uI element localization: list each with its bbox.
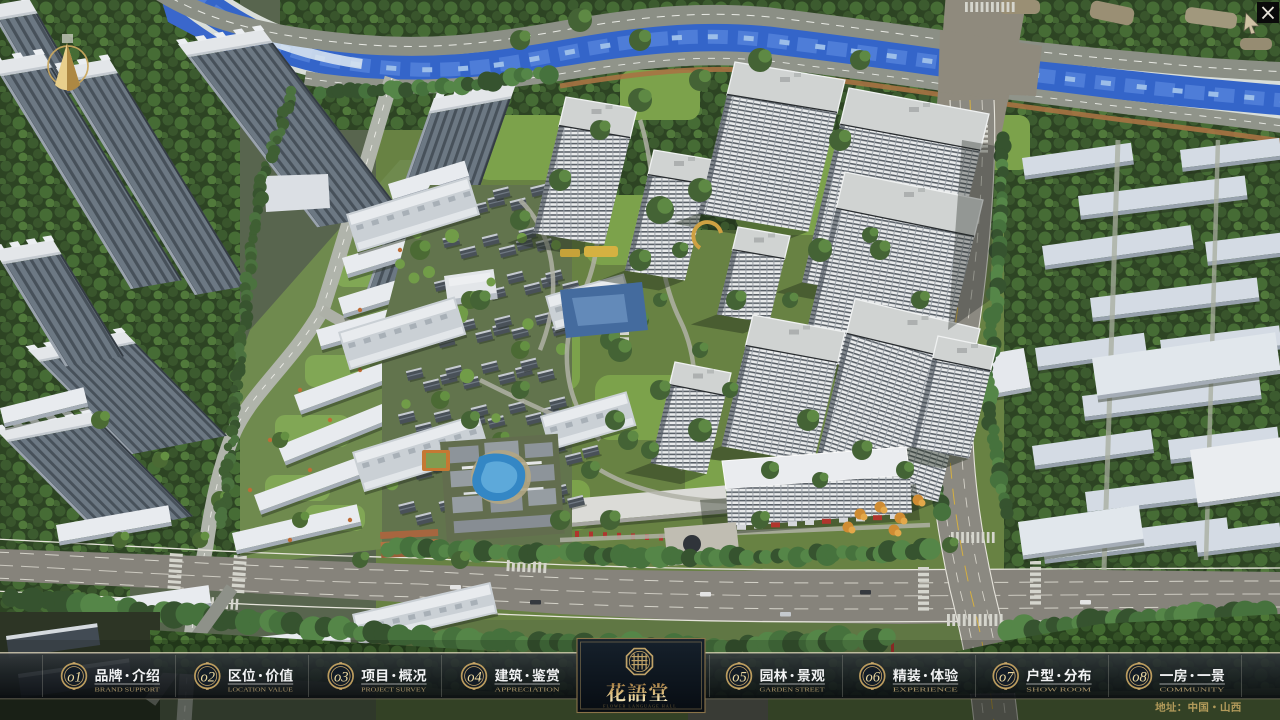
svg-text:SHOW ROOM: SHOW ROOM [1026,686,1092,693]
svg-text:o1: o1 [67,670,82,686]
svg-text:FLOWER LANGUAGE HALL: FLOWER LANGUAGE HALL [603,704,677,709]
svg-text:o4: o4 [467,670,482,686]
svg-text:o3: o3 [334,670,349,686]
svg-text:COMMUNITY: COMMUNITY [1160,686,1226,693]
svg-text:EXPERIENCE: EXPERIENCE [893,686,958,693]
svg-text:APPRECIATION: APPRECIATION [495,686,561,693]
svg-text:o2: o2 [201,670,216,686]
svg-text:o8: o8 [1132,670,1147,686]
svg-text:o6: o6 [866,670,881,686]
svg-text:o5: o5 [732,670,747,686]
svg-text:PROJECT SURVEY: PROJECT SURVEY [361,686,426,693]
svg-text:GARDEN STREET: GARDEN STREET [760,686,825,693]
svg-text:BRAND SUPPORT: BRAND SUPPORT [95,686,160,693]
svg-text:LOCATION VALUE: LOCATION VALUE [228,686,293,693]
svg-text:o7: o7 [999,670,1014,686]
